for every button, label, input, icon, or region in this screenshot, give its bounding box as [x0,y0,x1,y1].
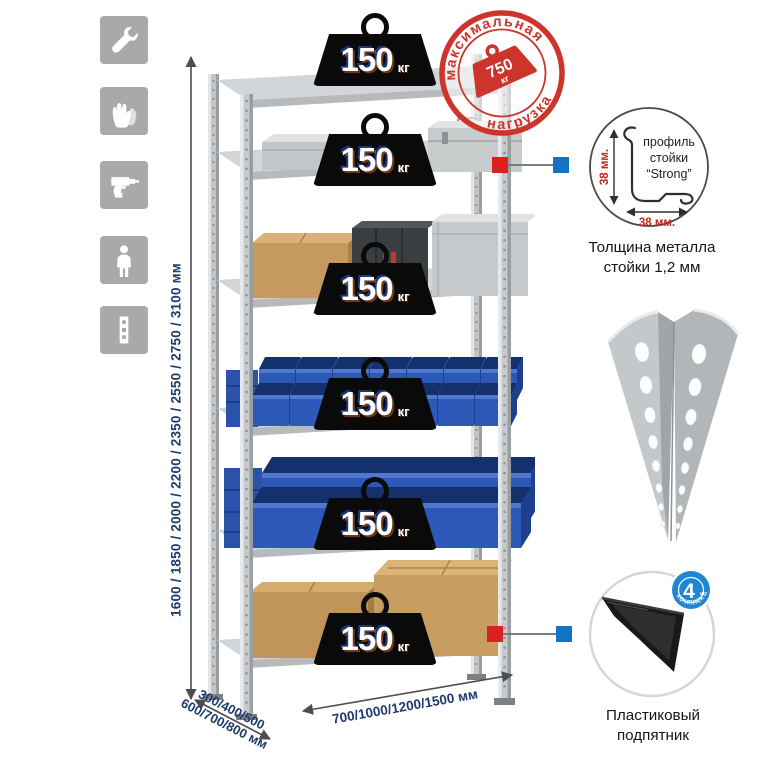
aluminum-box [432,214,535,296]
profile-label: профиль [643,135,695,149]
profile-label: “Strong” [646,167,691,181]
upright-post-photo [598,296,758,548]
shelf-weight-badge: 150кг [313,242,437,315]
red-marker [492,157,508,173]
wrench-icon [100,16,148,64]
metal-thickness-caption: Толщина металла стойки 1,2 мм [572,238,732,278]
profile-label: стойки [650,151,688,165]
plastic-foot-callout: 4 шт В КОМПЛЕКТЕ [586,568,720,702]
product-infographic: 1600 / 1850 / 2000 / 2200 / 2350 / 2550 … [0,0,765,765]
red-marker [487,626,503,642]
blue-marker [556,626,572,642]
callout-connector-line [502,633,558,635]
drill-icon [100,161,148,209]
blue-marker [553,157,569,173]
perforated-post-icon [100,306,148,354]
profile-callout: 38 мм. 38 мм. профиль стойки “Strong” [583,102,715,234]
profile-dim-vertical: 38 мм. [599,149,611,185]
callout-connector-line [506,164,555,166]
height-dimension-label: 1600 / 1850 / 2000 / 2200 / 2350 / 2550 … [169,263,184,617]
shelf-weight-badge: 150кг [313,592,437,665]
gloves-icon [100,87,148,135]
shelf-weight-badge: 150кг [313,477,437,550]
shelf-weight-badge: 150кг [313,113,437,186]
person-icon [100,236,148,284]
shelf-weight-badge: 150кг [313,357,437,430]
profile-dim-horizontal: 38 мм. [639,217,675,229]
plastic-foot-caption: Пластиковый подпятник [582,706,724,746]
max-load-stamp: максимальная нагрузка 750 кг [433,4,571,142]
shelf-weight-badge: 150кг [313,13,437,86]
